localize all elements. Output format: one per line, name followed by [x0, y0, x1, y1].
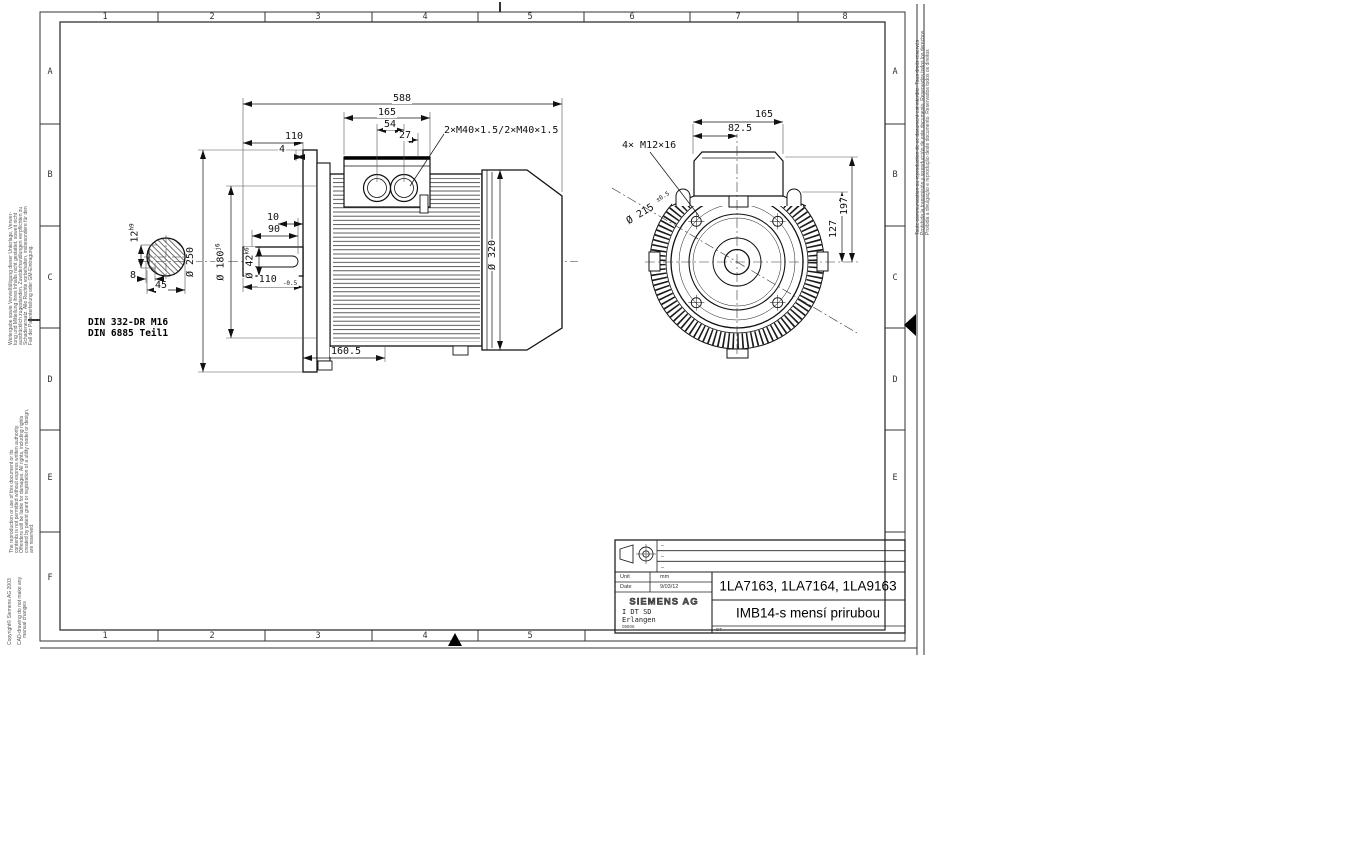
zone-row-right-c: C	[892, 274, 897, 283]
drawing-title: IMB14-s mensí prirubou	[736, 606, 880, 621]
dim-gland-spacing: 54	[383, 120, 397, 130]
zone-row-right-e: E	[892, 474, 897, 483]
rev-dash-1: –	[661, 543, 664, 549]
dim-overall-length: 588	[392, 94, 412, 104]
zone-col-top-7: 7	[735, 13, 740, 22]
zone-row-right-d: D	[892, 376, 897, 385]
zone-col-top-8: 8	[842, 13, 847, 22]
rev-dash-3: –	[661, 565, 664, 571]
cable-gland-label: 2×M40×1.5/2×M40×1.5	[444, 126, 558, 136]
date-label: Date	[620, 584, 632, 590]
dim-spigot-diameter: Ø 180j6	[215, 242, 226, 281]
unit-value: mm	[660, 574, 669, 580]
flange-holes-label: 4× M12×16	[622, 141, 676, 151]
zone-col-bottom-3: 3	[315, 632, 320, 641]
zone-row-left-a: A	[47, 68, 52, 77]
margin-note-pt: Proibida a divulgação e reprodução deste…	[926, 49, 931, 235]
zone-col-top-6: 6	[629, 13, 634, 22]
dim-flange-gap: 4	[278, 145, 286, 155]
zone-col-bottom-5: 5	[527, 632, 532, 641]
zone-col-bottom-4: 4	[422, 632, 427, 641]
doc-code: 05806	[622, 624, 635, 629]
dim-flange-height: 127	[829, 219, 839, 239]
zone-col-top-2: 2	[209, 13, 214, 22]
rev-dash-2: –	[661, 554, 664, 560]
dim-shaft-clearance: 110	[284, 132, 304, 142]
zone-col-top-1: 1	[102, 13, 107, 22]
dim-flange-diameter: Ø 250	[186, 246, 196, 278]
dim-cowl-diameter: Ø 320	[488, 239, 498, 271]
company-city: Erlangen	[622, 616, 656, 624]
copyright-note: Copyright© Siemens AG 2003	[8, 578, 13, 645]
projection-symbol-icon	[620, 544, 656, 564]
din-key-note: DIN 6885 Teil1	[88, 329, 168, 339]
dim-key-end: 10	[266, 213, 280, 223]
dim-key-height: 8	[129, 271, 137, 281]
zone-row-left-d: D	[47, 376, 52, 385]
margin-note-en-5: are reserved.	[30, 524, 35, 553]
dim-key-width: 12h9	[129, 222, 140, 243]
dim-shaft-length: 110 -0.5	[258, 275, 299, 287]
dim-flange-to-frame: 160.5	[330, 347, 362, 357]
unit-label: Unit	[620, 574, 630, 580]
zone-row-left-c: C	[47, 274, 52, 283]
zone-row-left-b: B	[47, 171, 52, 180]
dim-gland-offset: 27	[398, 131, 412, 141]
dim-key-across: 45	[154, 281, 168, 291]
zone-row-left-f: F	[47, 574, 52, 583]
zone-col-top-4: 4	[422, 13, 427, 22]
side-view	[138, 98, 578, 372]
dim-box-width: 165	[377, 108, 397, 118]
zone-row-left-e: E	[47, 474, 52, 483]
dim-box-height: 197	[840, 196, 850, 216]
dim-shaft-diameter: Ø 42k6	[244, 246, 255, 279]
drawing-sheet: 1 2 3 4 5 6 7 8 1 2 3 4 5 A B C D E F A …	[0, 0, 1359, 859]
corner-code: DT	[716, 627, 722, 632]
motor-types-title: 1LA7163, 1LA7164, 1LA9163	[719, 579, 896, 594]
date-value: 9/03/12	[660, 584, 678, 590]
zone-col-bottom-2: 2	[209, 632, 214, 641]
margin-note-de-5: Fall der Patenterteilung oder GM-Eintrag…	[29, 245, 34, 345]
dim-key-length: 90	[267, 225, 281, 235]
dim-flange-box-width: 165	[754, 110, 774, 120]
zone-row-right-a: A	[892, 68, 897, 77]
zone-col-top-3: 3	[315, 13, 320, 22]
flange-view	[612, 122, 858, 358]
zone-col-bottom-1: 1	[102, 632, 107, 641]
zone-col-top-5: 5	[527, 13, 532, 22]
company-dept: I DT SD	[622, 608, 652, 616]
din-center-hole-note: DIN 332-DR M16	[88, 318, 168, 328]
dim-flange-box-half: 82.5	[727, 124, 753, 134]
zone-row-right-b: B	[892, 171, 897, 180]
company-name: SIEMENS AG	[629, 597, 698, 608]
cad-note-2: manual changes	[23, 601, 28, 638]
drawing-linework	[0, 0, 1359, 859]
